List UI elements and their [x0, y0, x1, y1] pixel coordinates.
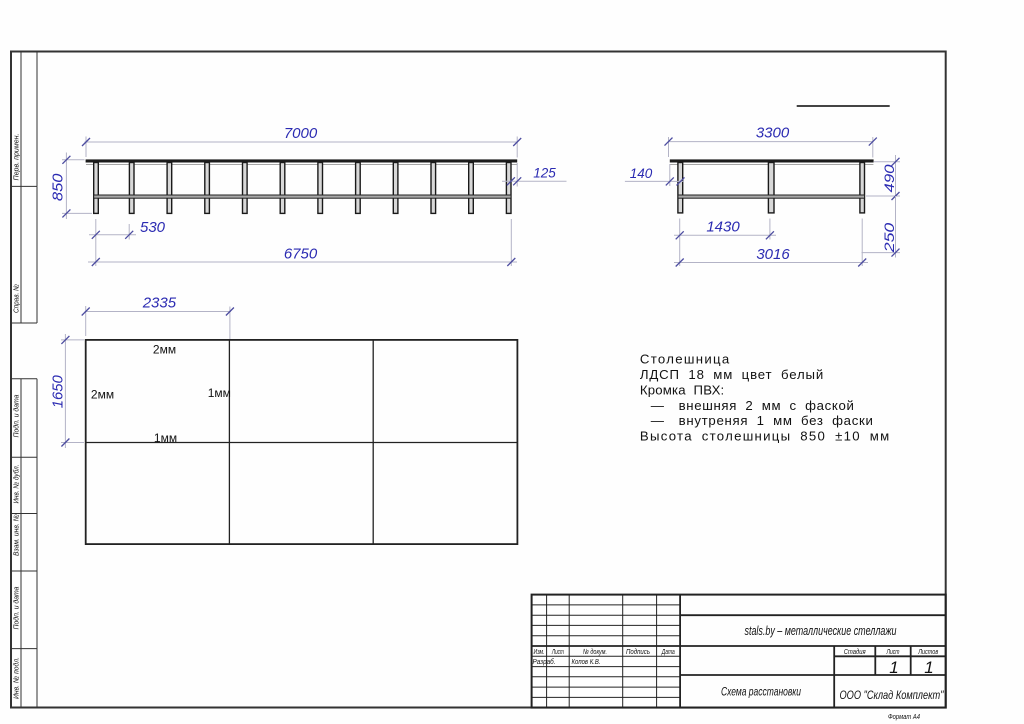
- svg-text:№ докум.: № докум.: [583, 647, 607, 656]
- svg-text:Разраб.: Разраб.: [533, 657, 556, 666]
- svg-text:2335: 2335: [142, 295, 177, 312]
- svg-text:Копов К.В.: Копов К.В.: [572, 657, 601, 666]
- svg-text:7000: 7000: [284, 125, 318, 142]
- svg-text:—: —: [651, 398, 665, 413]
- svg-text:1430: 1430: [706, 219, 740, 236]
- svg-text:Листов: Листов: [917, 647, 938, 656]
- svg-text:530: 530: [140, 219, 166, 236]
- svg-text:ООО "Склад Комплект": ООО "Склад Комплект": [840, 688, 945, 702]
- svg-text:125: 125: [533, 165, 556, 180]
- svg-text:внешняя 2 мм с фаской: внешняя 2 мм с фаской: [679, 398, 855, 413]
- svg-text:Высота столешницы 850 ±10 мм: Высота столешницы 850 ±10 мм: [640, 429, 890, 444]
- svg-text:250: 250: [881, 222, 897, 253]
- svg-text:Подп. и дата: Подп. и дата: [11, 395, 20, 438]
- svg-text:ЛДСП 18 мм цвет белый: ЛДСП 18 мм цвет белый: [640, 367, 824, 382]
- svg-text:1: 1: [924, 658, 933, 677]
- svg-text:490: 490: [881, 164, 897, 192]
- svg-text:Кромка ПВХ:: Кромка ПВХ:: [640, 382, 725, 397]
- svg-text:Столешница: Столешница: [640, 352, 730, 367]
- svg-text:Формат А4: Формат А4: [888, 712, 920, 721]
- svg-text:Стадия: Стадия: [844, 647, 866, 656]
- svg-text:2мм: 2мм: [153, 343, 176, 357]
- svg-text:850: 850: [50, 173, 67, 201]
- svg-text:Перв. примен.: Перв. примен.: [11, 134, 20, 181]
- svg-text:Инв. № подл.: Инв. № подл.: [11, 657, 20, 699]
- svg-text:1: 1: [889, 658, 898, 677]
- svg-text:140: 140: [630, 166, 653, 181]
- svg-text:3016: 3016: [756, 246, 790, 263]
- svg-text:Справ. №: Справ. №: [11, 284, 20, 313]
- svg-text:Инв. № дубл.: Инв. № дубл.: [11, 465, 20, 504]
- svg-text:Дата: Дата: [661, 647, 675, 656]
- svg-text:Подп. и дата: Подп. и дата: [11, 587, 20, 630]
- svg-text:1мм: 1мм: [208, 386, 231, 400]
- svg-text:6750: 6750: [284, 246, 318, 263]
- svg-text:Взам. инв. №: Взам. инв. №: [11, 514, 20, 556]
- svg-text:Лист: Лист: [551, 647, 564, 656]
- svg-text:Лист: Лист: [886, 647, 900, 656]
- svg-text:—: —: [651, 413, 665, 428]
- svg-text:Подпись: Подпись: [626, 647, 650, 656]
- svg-text:Изм.: Изм.: [534, 647, 545, 656]
- svg-text:1мм: 1мм: [154, 431, 177, 445]
- svg-text:2мм: 2мм: [91, 388, 114, 402]
- svg-text:3300: 3300: [756, 125, 790, 142]
- svg-text:внутреняя 1 мм без фаски: внутреняя 1 мм без фаски: [679, 413, 874, 428]
- svg-text:stals.by – металлические стелл: stals.by – металлические стеллажи: [745, 623, 897, 638]
- svg-text:1650: 1650: [50, 375, 67, 409]
- svg-text:Схема расстановки: Схема расстановки: [721, 685, 801, 699]
